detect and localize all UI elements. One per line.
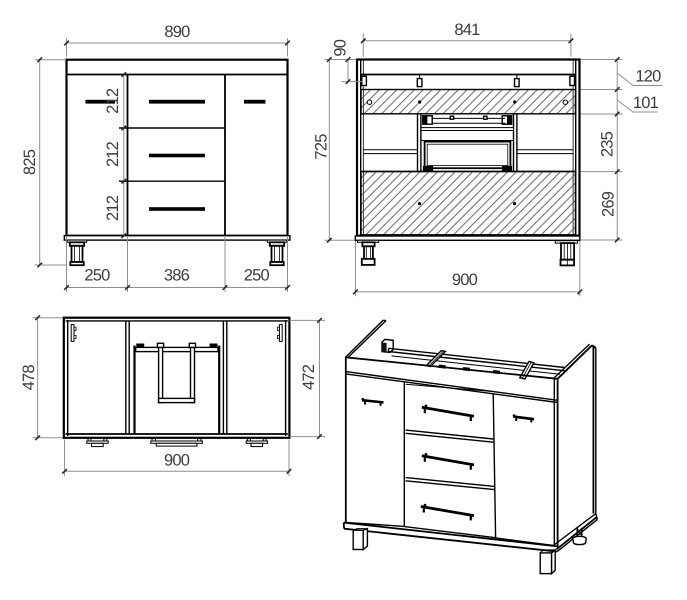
svg-text:212: 212	[104, 88, 122, 114]
svg-text:386: 386	[164, 267, 190, 285]
svg-text:212: 212	[104, 141, 122, 167]
svg-text:900: 900	[452, 271, 478, 289]
svg-text:120: 120	[635, 68, 661, 86]
svg-text:890: 890	[164, 23, 190, 41]
svg-text:235: 235	[598, 131, 616, 157]
svg-text:269: 269	[599, 191, 617, 217]
svg-text:101: 101	[633, 94, 659, 112]
svg-text:725: 725	[312, 134, 330, 160]
svg-text:825: 825	[21, 149, 39, 175]
svg-text:212: 212	[104, 195, 122, 221]
svg-text:90: 90	[331, 39, 349, 56]
svg-text:478: 478	[20, 365, 38, 391]
svg-text:472: 472	[300, 364, 318, 390]
svg-text:250: 250	[244, 267, 270, 285]
svg-text:900: 900	[164, 452, 190, 470]
svg-text:841: 841	[454, 21, 480, 39]
svg-text:250: 250	[84, 267, 110, 285]
